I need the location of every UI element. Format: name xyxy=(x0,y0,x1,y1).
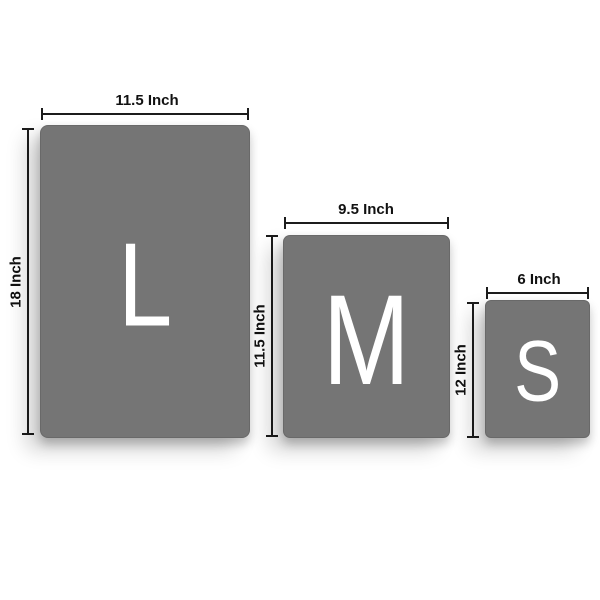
dimension-line xyxy=(27,128,29,435)
small-size-letter: S xyxy=(514,329,561,415)
large-width-label: 11.5 Inch xyxy=(115,92,178,109)
size-comparison-chart: 11.5 Inch 18 Inch L 9.5 Inch 11.5 Inch M… xyxy=(0,0,600,600)
dimension-line xyxy=(41,113,249,115)
small-height-dimension-line xyxy=(467,302,479,438)
dimension-line xyxy=(271,235,273,437)
dimension-line xyxy=(284,222,449,224)
large-size-letter: L xyxy=(118,226,172,345)
medium-width-dimension-line xyxy=(284,217,449,229)
small-width-dimension-line xyxy=(486,287,589,299)
dimension-line xyxy=(486,292,589,294)
small-width-label: 6 Inch xyxy=(517,271,560,288)
large-size-panel: L xyxy=(40,125,250,438)
medium-width-label: 9.5 Inch xyxy=(338,201,394,218)
medium-size-panel: M xyxy=(283,235,450,438)
medium-size-letter: M xyxy=(323,276,410,404)
large-height-dimension-line xyxy=(22,128,34,435)
small-size-panel: S xyxy=(485,300,590,438)
large-width-dimension-line xyxy=(41,108,249,120)
dimension-line xyxy=(472,302,474,438)
medium-height-dimension-line xyxy=(266,235,278,437)
